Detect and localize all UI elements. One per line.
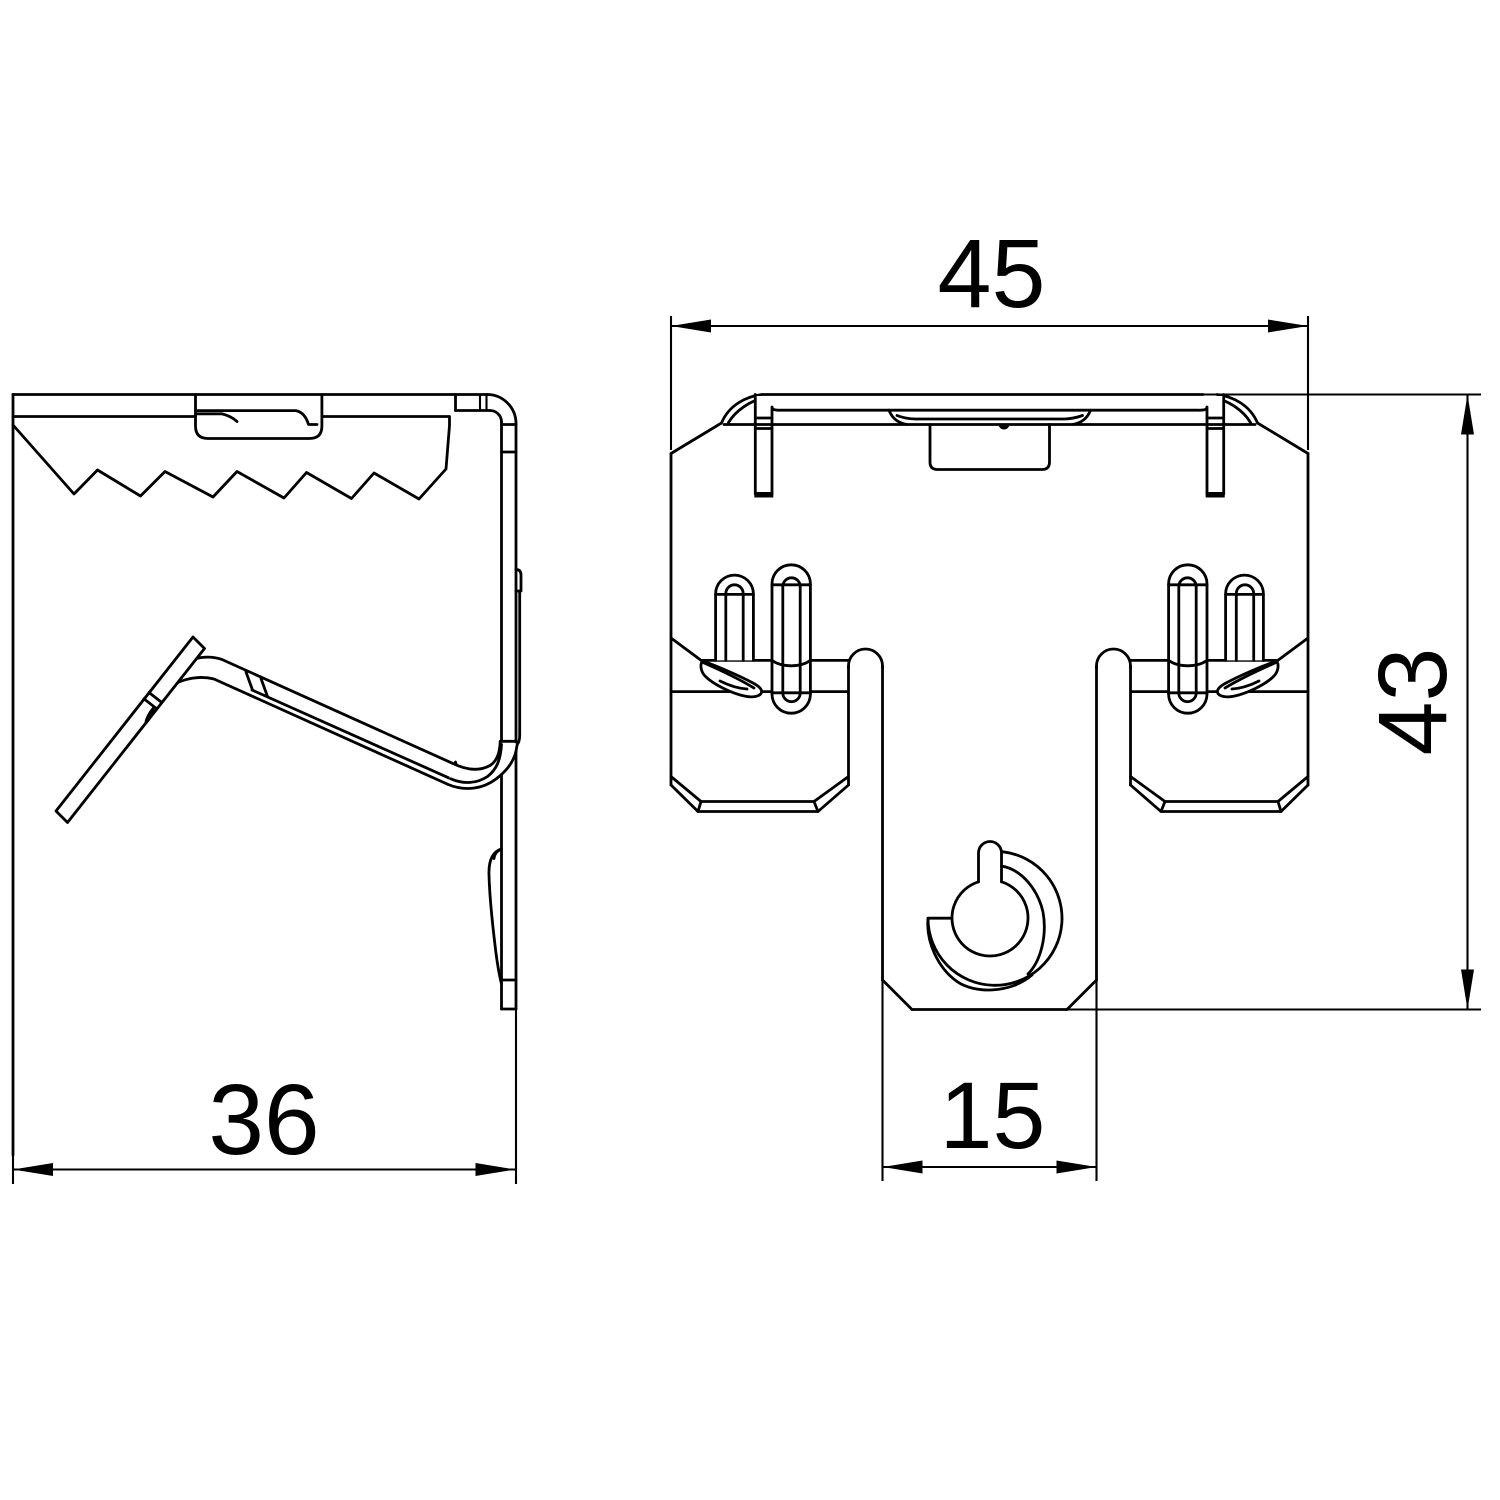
svg-text:15: 15 [940,1063,1046,1169]
svg-text:45: 45 [938,219,1046,328]
svg-text:36: 36 [208,1064,319,1176]
svg-text:43: 43 [1358,648,1467,756]
